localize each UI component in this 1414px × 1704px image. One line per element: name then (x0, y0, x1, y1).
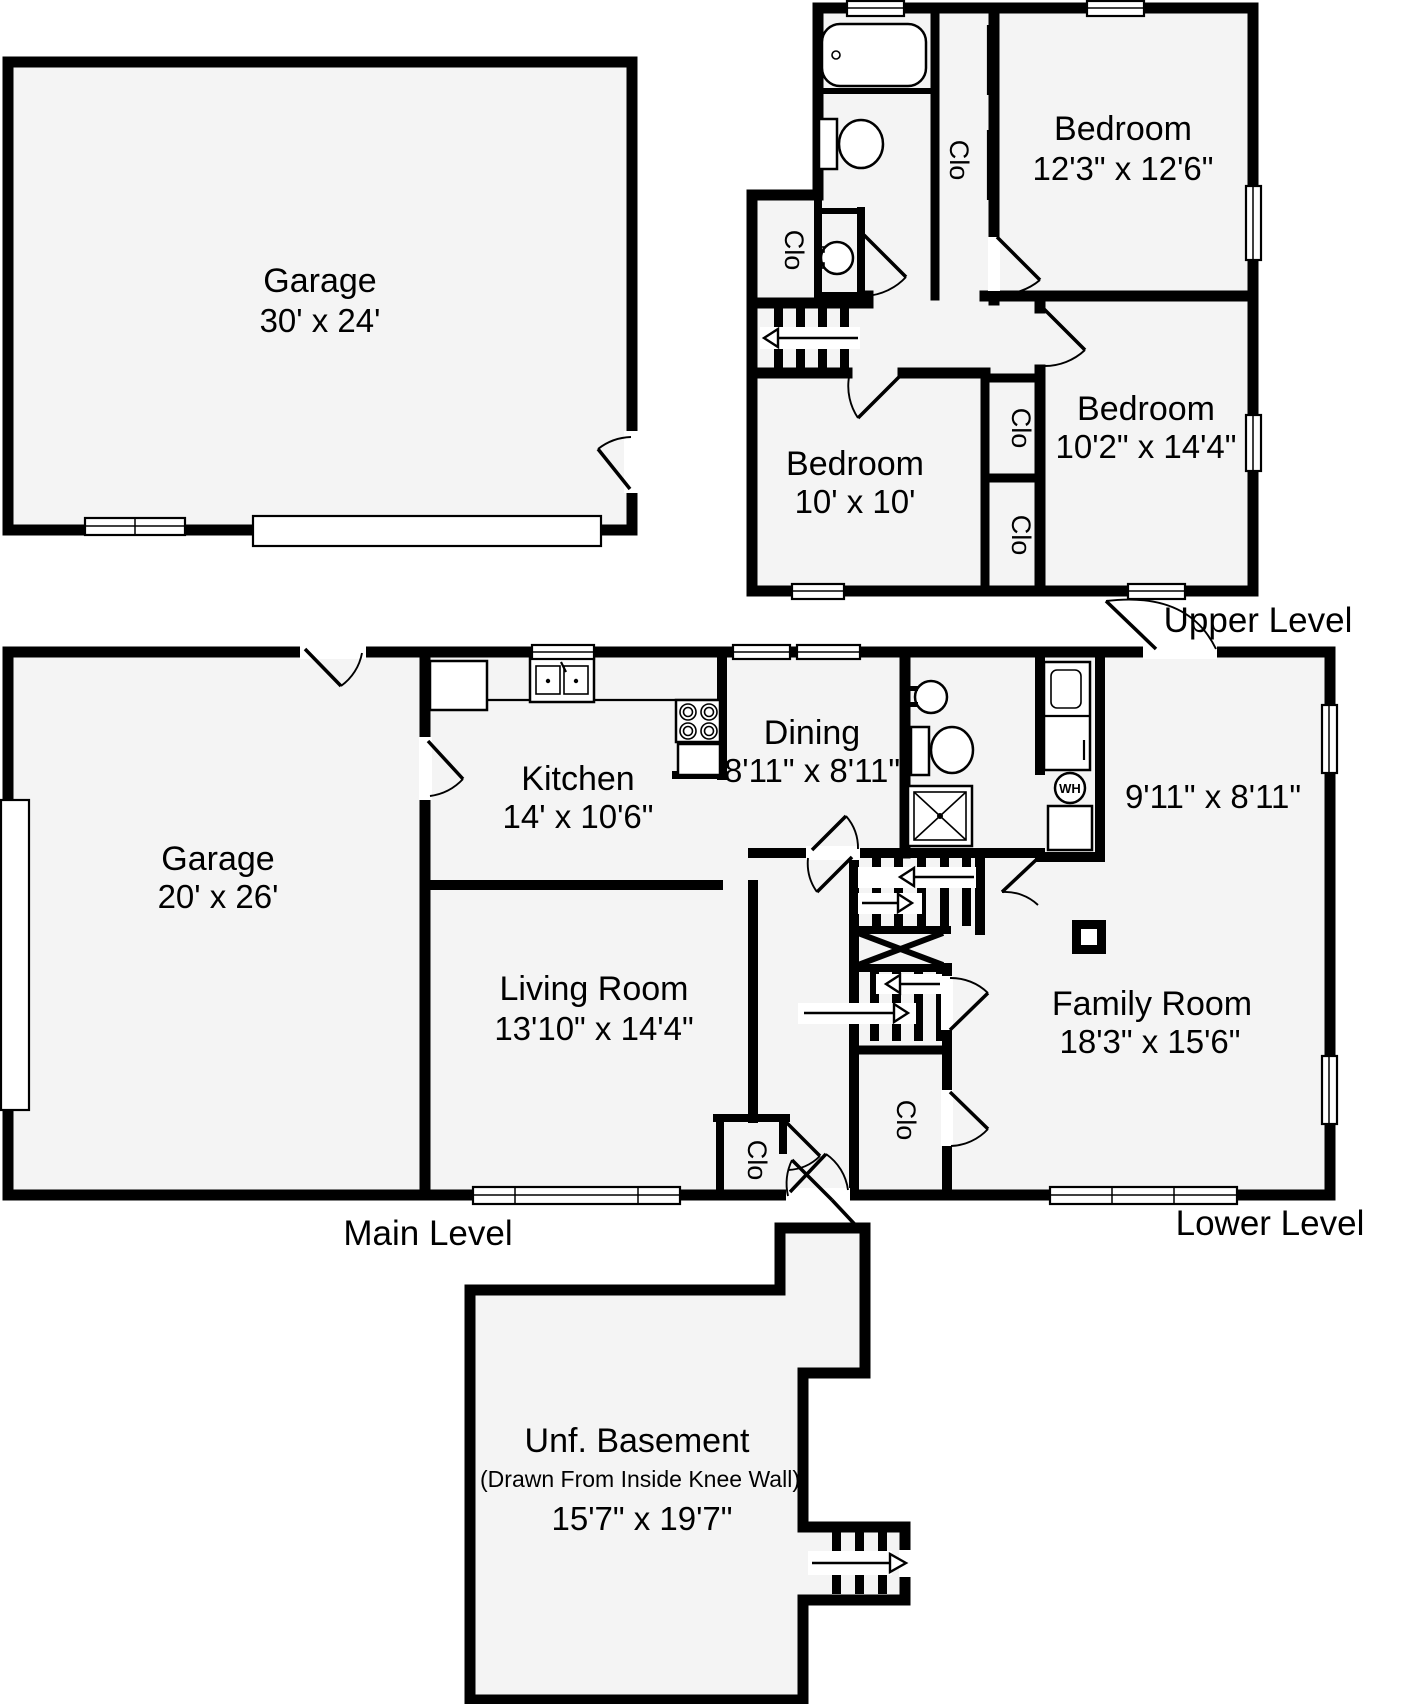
main-toilet (911, 727, 973, 775)
closet-label: Clo (891, 1100, 921, 1141)
basement: Unf. Basement (Drawn From Inside Knee Wa… (470, 1228, 915, 1700)
basement-note: (Drawn From Inside Knee Wall) (480, 1466, 800, 1492)
refrigerator (430, 661, 487, 710)
bedroom2-dims: 10'2" x 14'4" (1056, 428, 1237, 465)
bedroom1-name: Bedroom (1054, 110, 1192, 148)
bedroom3-name: Bedroom (786, 445, 924, 483)
main-garage-dims: 20' x 26' (158, 878, 279, 915)
dining-name: Dining (764, 714, 860, 752)
washer-dryer (1044, 662, 1090, 770)
stove (676, 700, 720, 775)
shower (908, 786, 972, 846)
kitchen-sink (530, 658, 594, 702)
basement-dims: 15'7" x 19'7" (552, 1500, 733, 1537)
fireplace-post (1072, 920, 1106, 954)
upper-garage-overhead-door (253, 516, 601, 546)
utility-appliance (1048, 806, 1092, 850)
water-heater-label: WH (1059, 781, 1081, 796)
upper-garage-dims: 30' x 24' (260, 302, 381, 339)
closet-label: Clo (1006, 408, 1036, 449)
family-room-dims: 18'3" x 15'6" (1060, 1023, 1241, 1060)
upper-level: Clo Clo Clo Clo Bedroom 12'3" x 12'6" Be… (752, 1, 1352, 640)
water-heater: WH (1055, 773, 1085, 803)
upper-garage-window (85, 518, 185, 535)
closet-label: Clo (1006, 515, 1036, 556)
kitchen-dims: 14' x 10'6" (503, 798, 654, 835)
kitchen-name: Kitchen (521, 760, 634, 798)
upper-garage-name: Garage (263, 262, 376, 300)
bedroom2-name: Bedroom (1077, 390, 1215, 428)
main-level-outline (8, 652, 1330, 1195)
basement-outline (470, 1228, 905, 1700)
living-room-name: Living Room (500, 970, 689, 1008)
utility-room-dims: 9'11" x 8'11" (1125, 778, 1301, 815)
family-room-name: Family Room (1052, 985, 1252, 1023)
floorplan-drawing: Garage 30' x 24' (0, 0, 1414, 1704)
basement-name: Unf. Basement (525, 1422, 750, 1460)
main-lower-level: WH (1, 600, 1364, 1253)
stove-counter (678, 744, 720, 775)
upper-garage: Garage 30' x 24' (8, 62, 641, 546)
main-garage-name: Garage (161, 840, 274, 878)
bedroom1-dims: 12'3" x 12'6" (1033, 150, 1214, 187)
bedroom3-dims: 10' x 10' (795, 483, 916, 520)
lower-level-label: Lower Level (1176, 1204, 1365, 1243)
living-room-dims: 13'10" x 14'4" (494, 1010, 693, 1047)
toilet (819, 119, 883, 169)
closet-label: Clo (944, 140, 974, 181)
closet-label: Clo (742, 1140, 772, 1181)
dining-dims: 8'11" x 8'11" (724, 752, 900, 789)
floorplan-page: Garage 30' x 24' (0, 0, 1414, 1704)
upper-level-label: Upper Level (1164, 601, 1353, 640)
bathtub (822, 24, 926, 86)
main-level-label: Main Level (343, 1214, 512, 1253)
closet-label: Clo (779, 230, 809, 271)
main-garage-overhead-door (1, 800, 29, 1110)
